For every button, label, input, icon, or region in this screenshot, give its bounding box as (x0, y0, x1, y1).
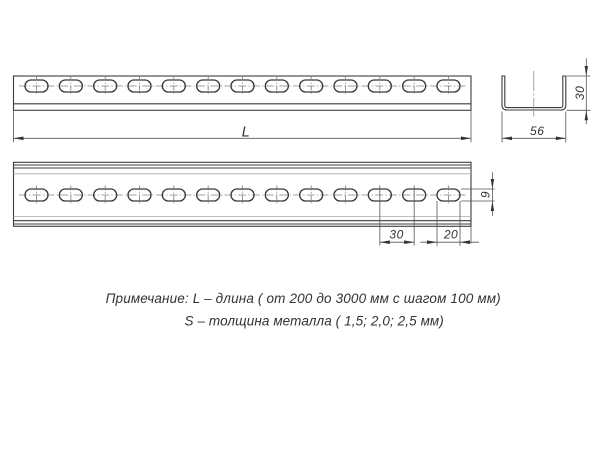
svg-text:L: L (242, 124, 250, 140)
svg-text:9: 9 (478, 191, 492, 198)
svg-text:S – толщина металла ( 1,5; 2,0: S – толщина металла ( 1,5; 2,0; 2,5 мм) (185, 313, 444, 328)
svg-text:20: 20 (443, 228, 458, 242)
svg-text:56: 56 (530, 124, 544, 138)
svg-text:Примечание: L – длина ( от 200: Примечание: L – длина ( от 200 до 3000 м… (106, 291, 501, 306)
svg-text:30: 30 (389, 228, 403, 242)
svg-text:30: 30 (573, 86, 587, 100)
